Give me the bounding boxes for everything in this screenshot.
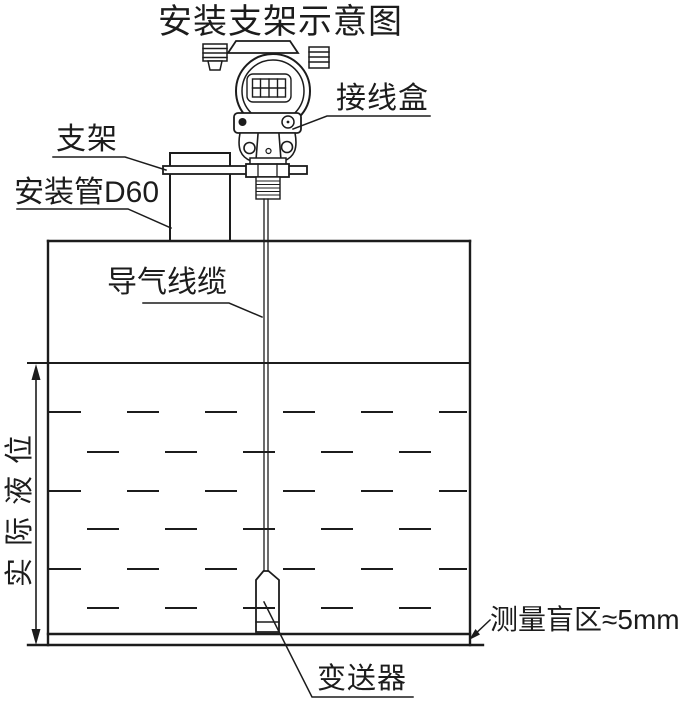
air-cable-line [264,199,268,571]
lcd-display [247,74,291,102]
lower-housing [239,133,296,161]
threaded-connection [256,177,280,199]
label-mounting-pipe: 安装管D60 [14,176,159,209]
leader-bracket [53,157,166,170]
head-top-cap [228,41,298,53]
mounting-nut [246,164,289,177]
leader-junction-box [293,116,430,129]
label-junction-box: 接线盒 [336,82,429,115]
label-bracket: 支架 [56,123,118,156]
transmitter-head [203,41,329,199]
label-actual-level: 实际液位 [5,415,35,595]
bolt-left [239,118,247,126]
leader-mounting-pipe [17,209,171,228]
label-air-cable: 导气线缆 [107,266,227,299]
cable-gland [203,44,227,70]
diagram-canvas: 安装支架示意图 接线盒 支架 安装管D60 导气线缆 实际液位 测量盲区≈5mm… [0,0,700,708]
junction-port [309,47,329,68]
diagram-title: 安装支架示意图 [158,4,403,41]
label-blind-zone: 测量盲区≈5mm [490,605,680,636]
leader-blind-zone [469,620,490,640]
probe-drawing [256,571,279,632]
label-transmitter: 变送器 [317,664,407,696]
leader-air-cable [143,303,262,317]
